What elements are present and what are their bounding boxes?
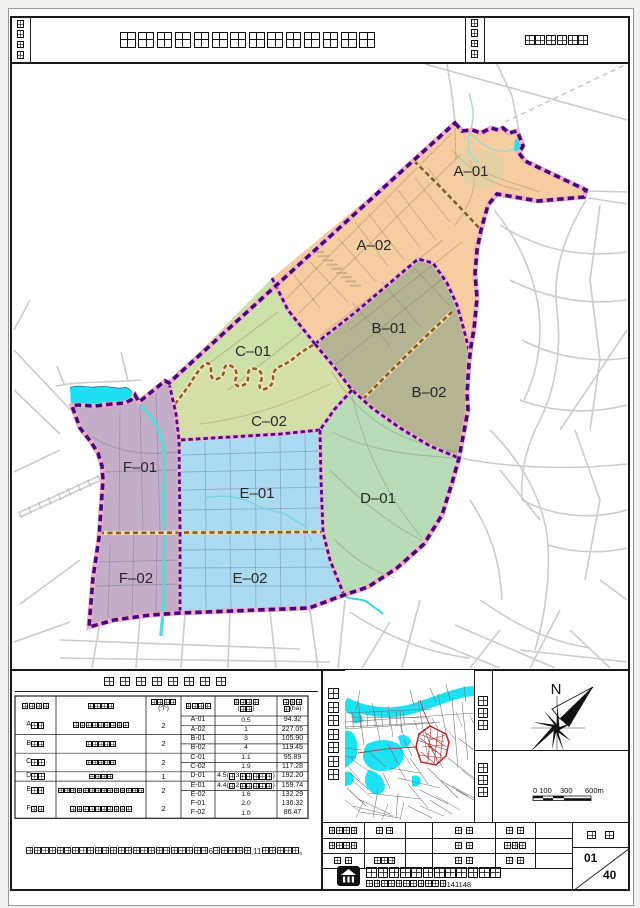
svg-text:0 100: 0 100 bbox=[533, 786, 552, 795]
svg-text:N: N bbox=[551, 681, 562, 698]
svg-text:300: 300 bbox=[560, 786, 573, 795]
svg-text:600m: 600m bbox=[585, 786, 604, 795]
